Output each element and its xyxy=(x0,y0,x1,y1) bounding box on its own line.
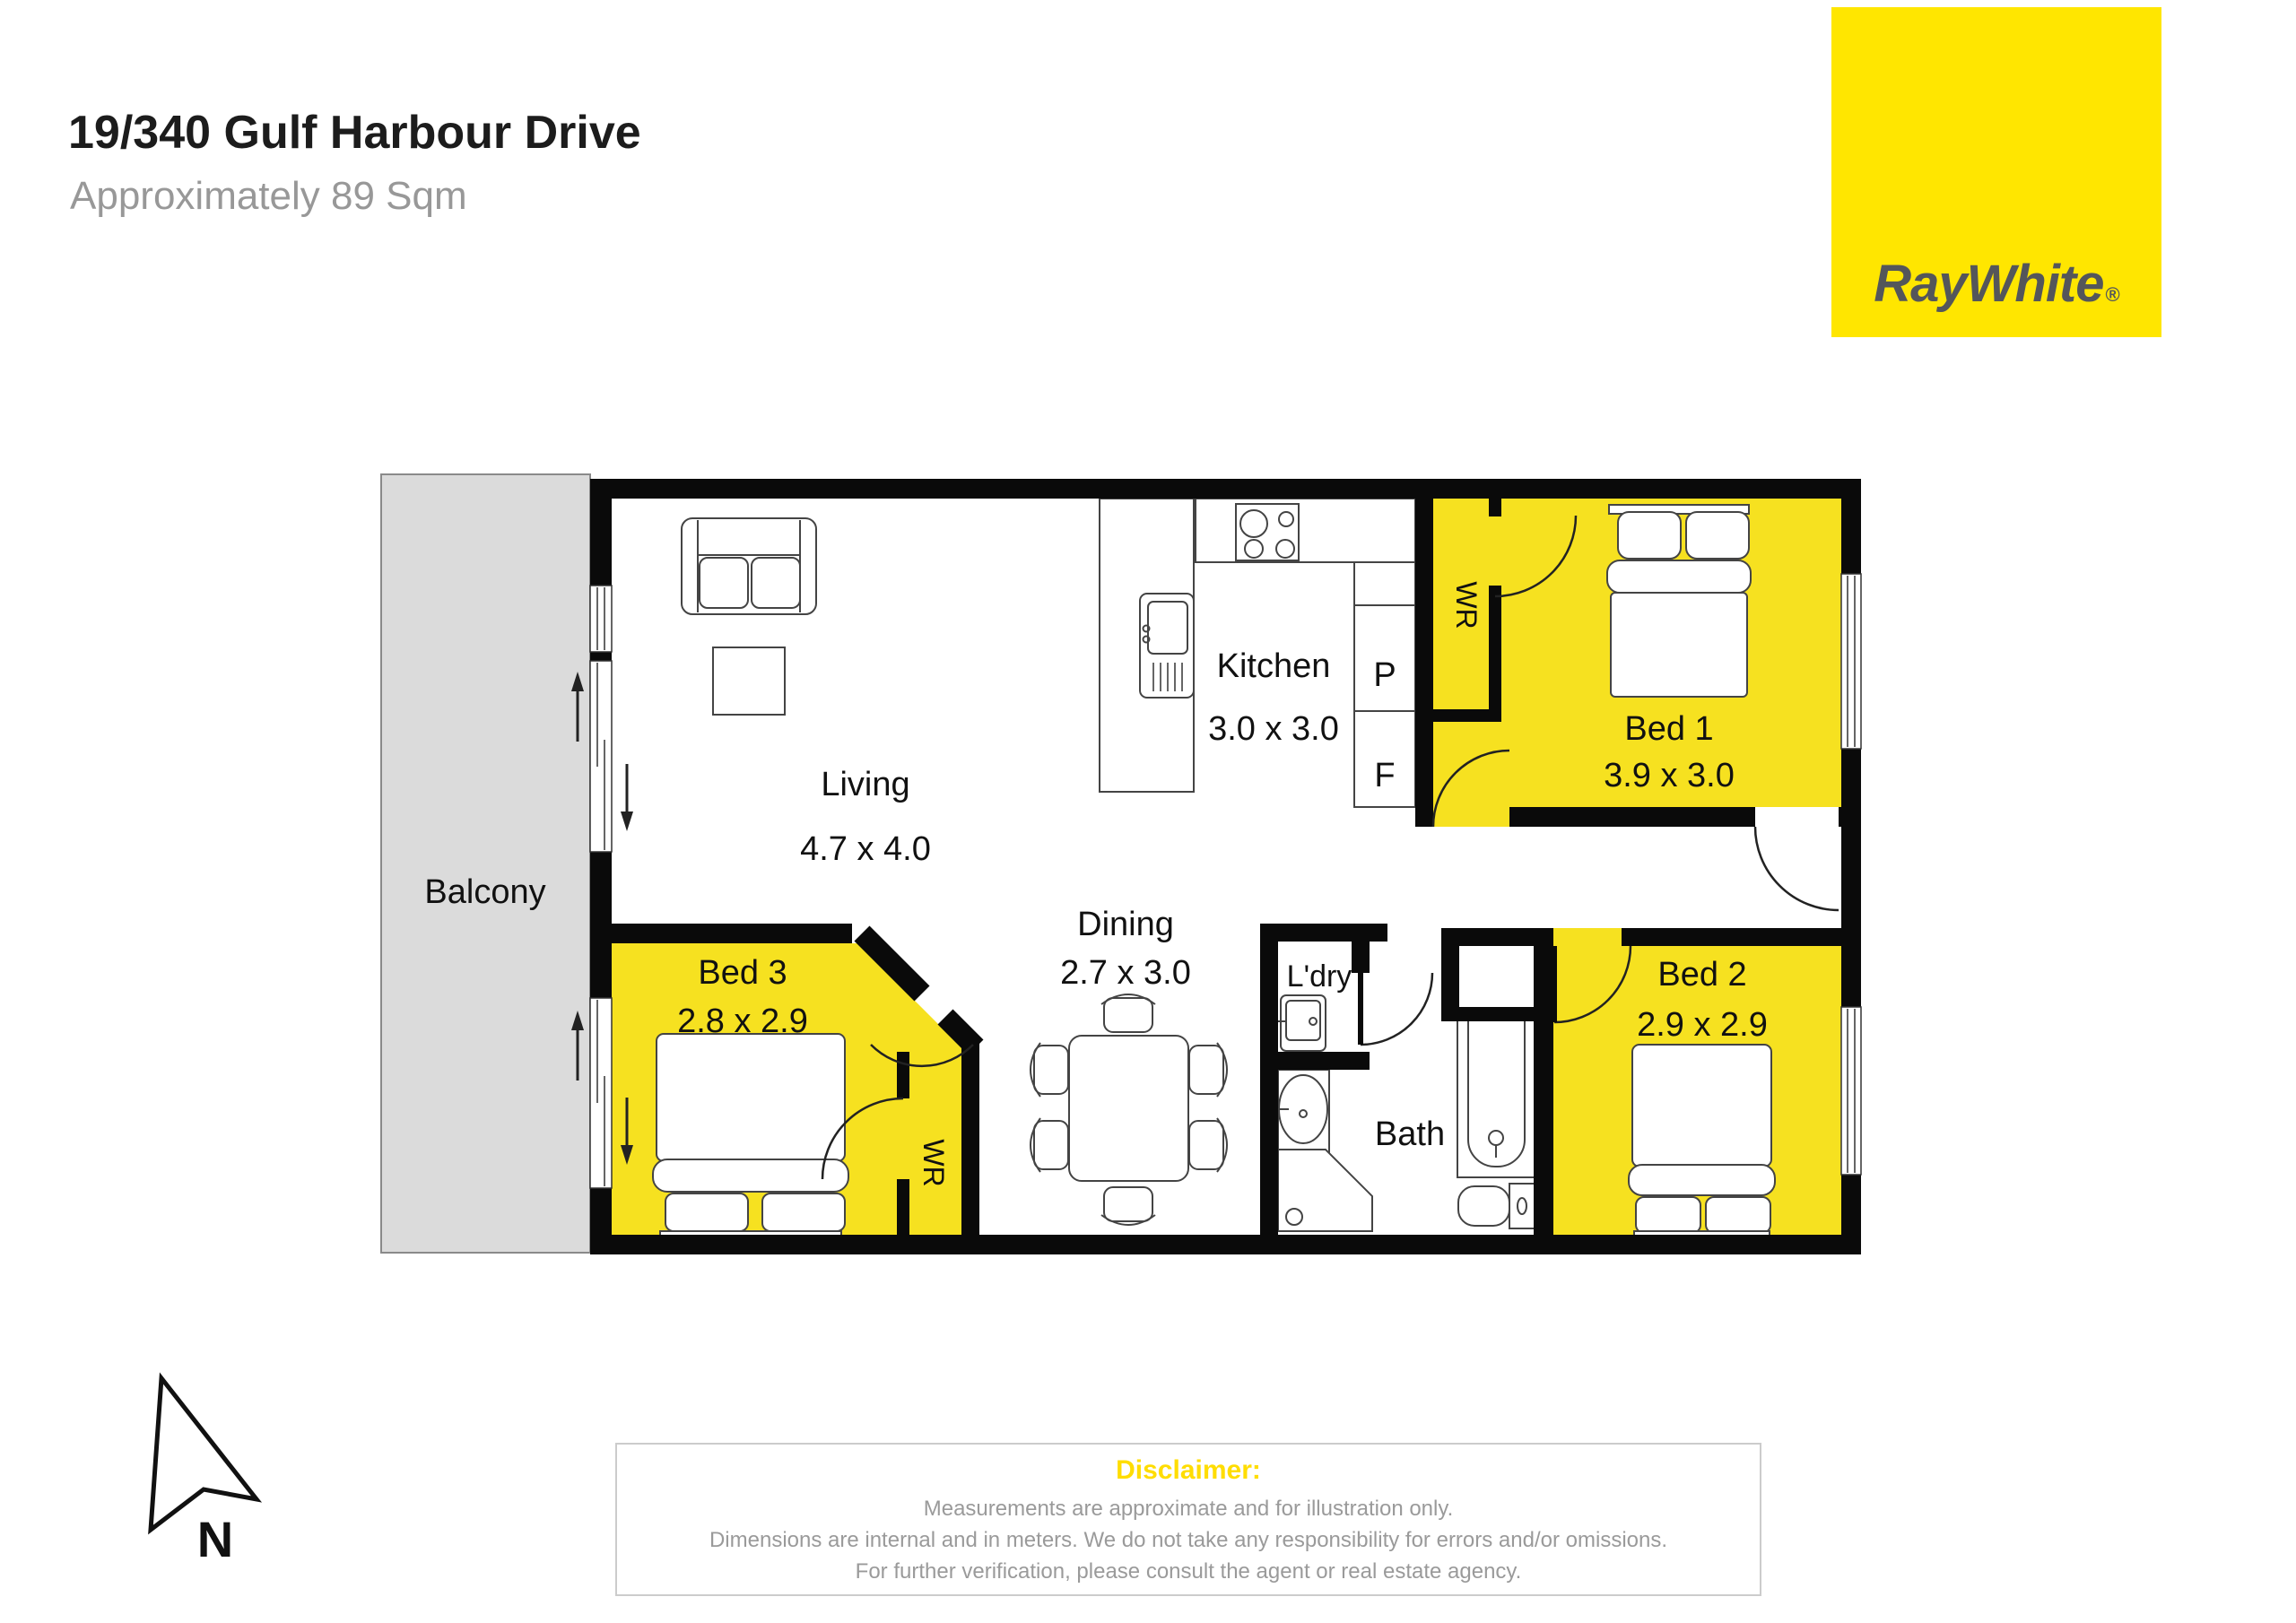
disclaimer-line: Dimensions are internal and in meters. W… xyxy=(617,1524,1760,1556)
toilet-icon xyxy=(1458,1184,1535,1228)
page-subtitle: Approximately 89 Sqm xyxy=(70,174,467,219)
bath-label: Bath xyxy=(1375,1115,1445,1153)
bed1-label: Bed 1 xyxy=(1624,710,1713,748)
bed3-wardrobe-label: WR xyxy=(918,1139,950,1186)
floorplan-drawing: Balcony Living 4.7 x 4.0 Kitchen 3.0 x 3… xyxy=(377,471,1865,1260)
dining-dims: 2.7 x 3.0 xyxy=(1060,954,1191,992)
kitchen-dims: 3.0 x 3.0 xyxy=(1208,710,1339,748)
basin-icon xyxy=(1278,1070,1329,1159)
disclaimer-line: Measurements are approximate and for ill… xyxy=(617,1493,1760,1524)
bed1-wardrobe-label: WR xyxy=(1450,581,1483,629)
disclaimer-line: For further verification, please consult… xyxy=(617,1556,1760,1587)
raywhite-logo-text: RayWhite® xyxy=(1874,254,2118,337)
sofa-icon xyxy=(682,518,816,614)
cupboard-interior xyxy=(1459,946,1534,1007)
north-arrow-icon xyxy=(151,1378,257,1530)
balcony-label: Balcony xyxy=(424,873,545,911)
disclaimer-box: Disclaimer: Measurements are approximate… xyxy=(615,1443,1761,1596)
disclaimer-heading: Disclaimer: xyxy=(617,1455,1760,1486)
stove-icon xyxy=(1236,504,1299,560)
bed2-label: Bed 2 xyxy=(1657,956,1746,994)
pantry-label: P xyxy=(1373,656,1396,694)
chair-icon xyxy=(1101,994,1155,1032)
chair-icon xyxy=(1101,1187,1155,1225)
chair-icon xyxy=(1189,1118,1227,1172)
balcony-area xyxy=(381,474,590,1253)
floorplan-page: 19/340 Gulf Harbour Drive Approximately … xyxy=(0,0,2296,1623)
chair-icon xyxy=(1031,1043,1068,1097)
living-label: Living xyxy=(821,766,909,803)
coffee-table-icon xyxy=(713,647,785,715)
page-title: 19/340 Gulf Harbour Drive xyxy=(68,106,641,160)
fridge-label: F xyxy=(1374,757,1395,794)
bed3-label: Bed 3 xyxy=(698,954,787,992)
kitchen-label: Kitchen xyxy=(1217,647,1331,685)
bed3-dims: 2.8 x 2.9 xyxy=(677,1002,808,1040)
north-label: N xyxy=(197,1511,233,1563)
registered-mark-icon: ® xyxy=(2106,283,2119,306)
raywhite-logo: RayWhite® xyxy=(1831,7,2161,337)
brand-name: RayWhite xyxy=(1874,255,2103,313)
compass: N xyxy=(126,1370,278,1563)
chair-icon xyxy=(1031,1118,1068,1172)
bed-icon xyxy=(1607,505,1751,697)
living-dims: 4.7 x 4.0 xyxy=(800,830,931,868)
kitchen-sink-icon xyxy=(1140,594,1194,698)
bed1-dims: 3.9 x 3.0 xyxy=(1604,757,1735,794)
bed2-dims: 2.9 x 2.9 xyxy=(1637,1006,1768,1044)
dining-label: Dining xyxy=(1077,906,1174,943)
chair-icon xyxy=(1189,1043,1227,1097)
laundry-label: L'dry xyxy=(1287,959,1352,994)
